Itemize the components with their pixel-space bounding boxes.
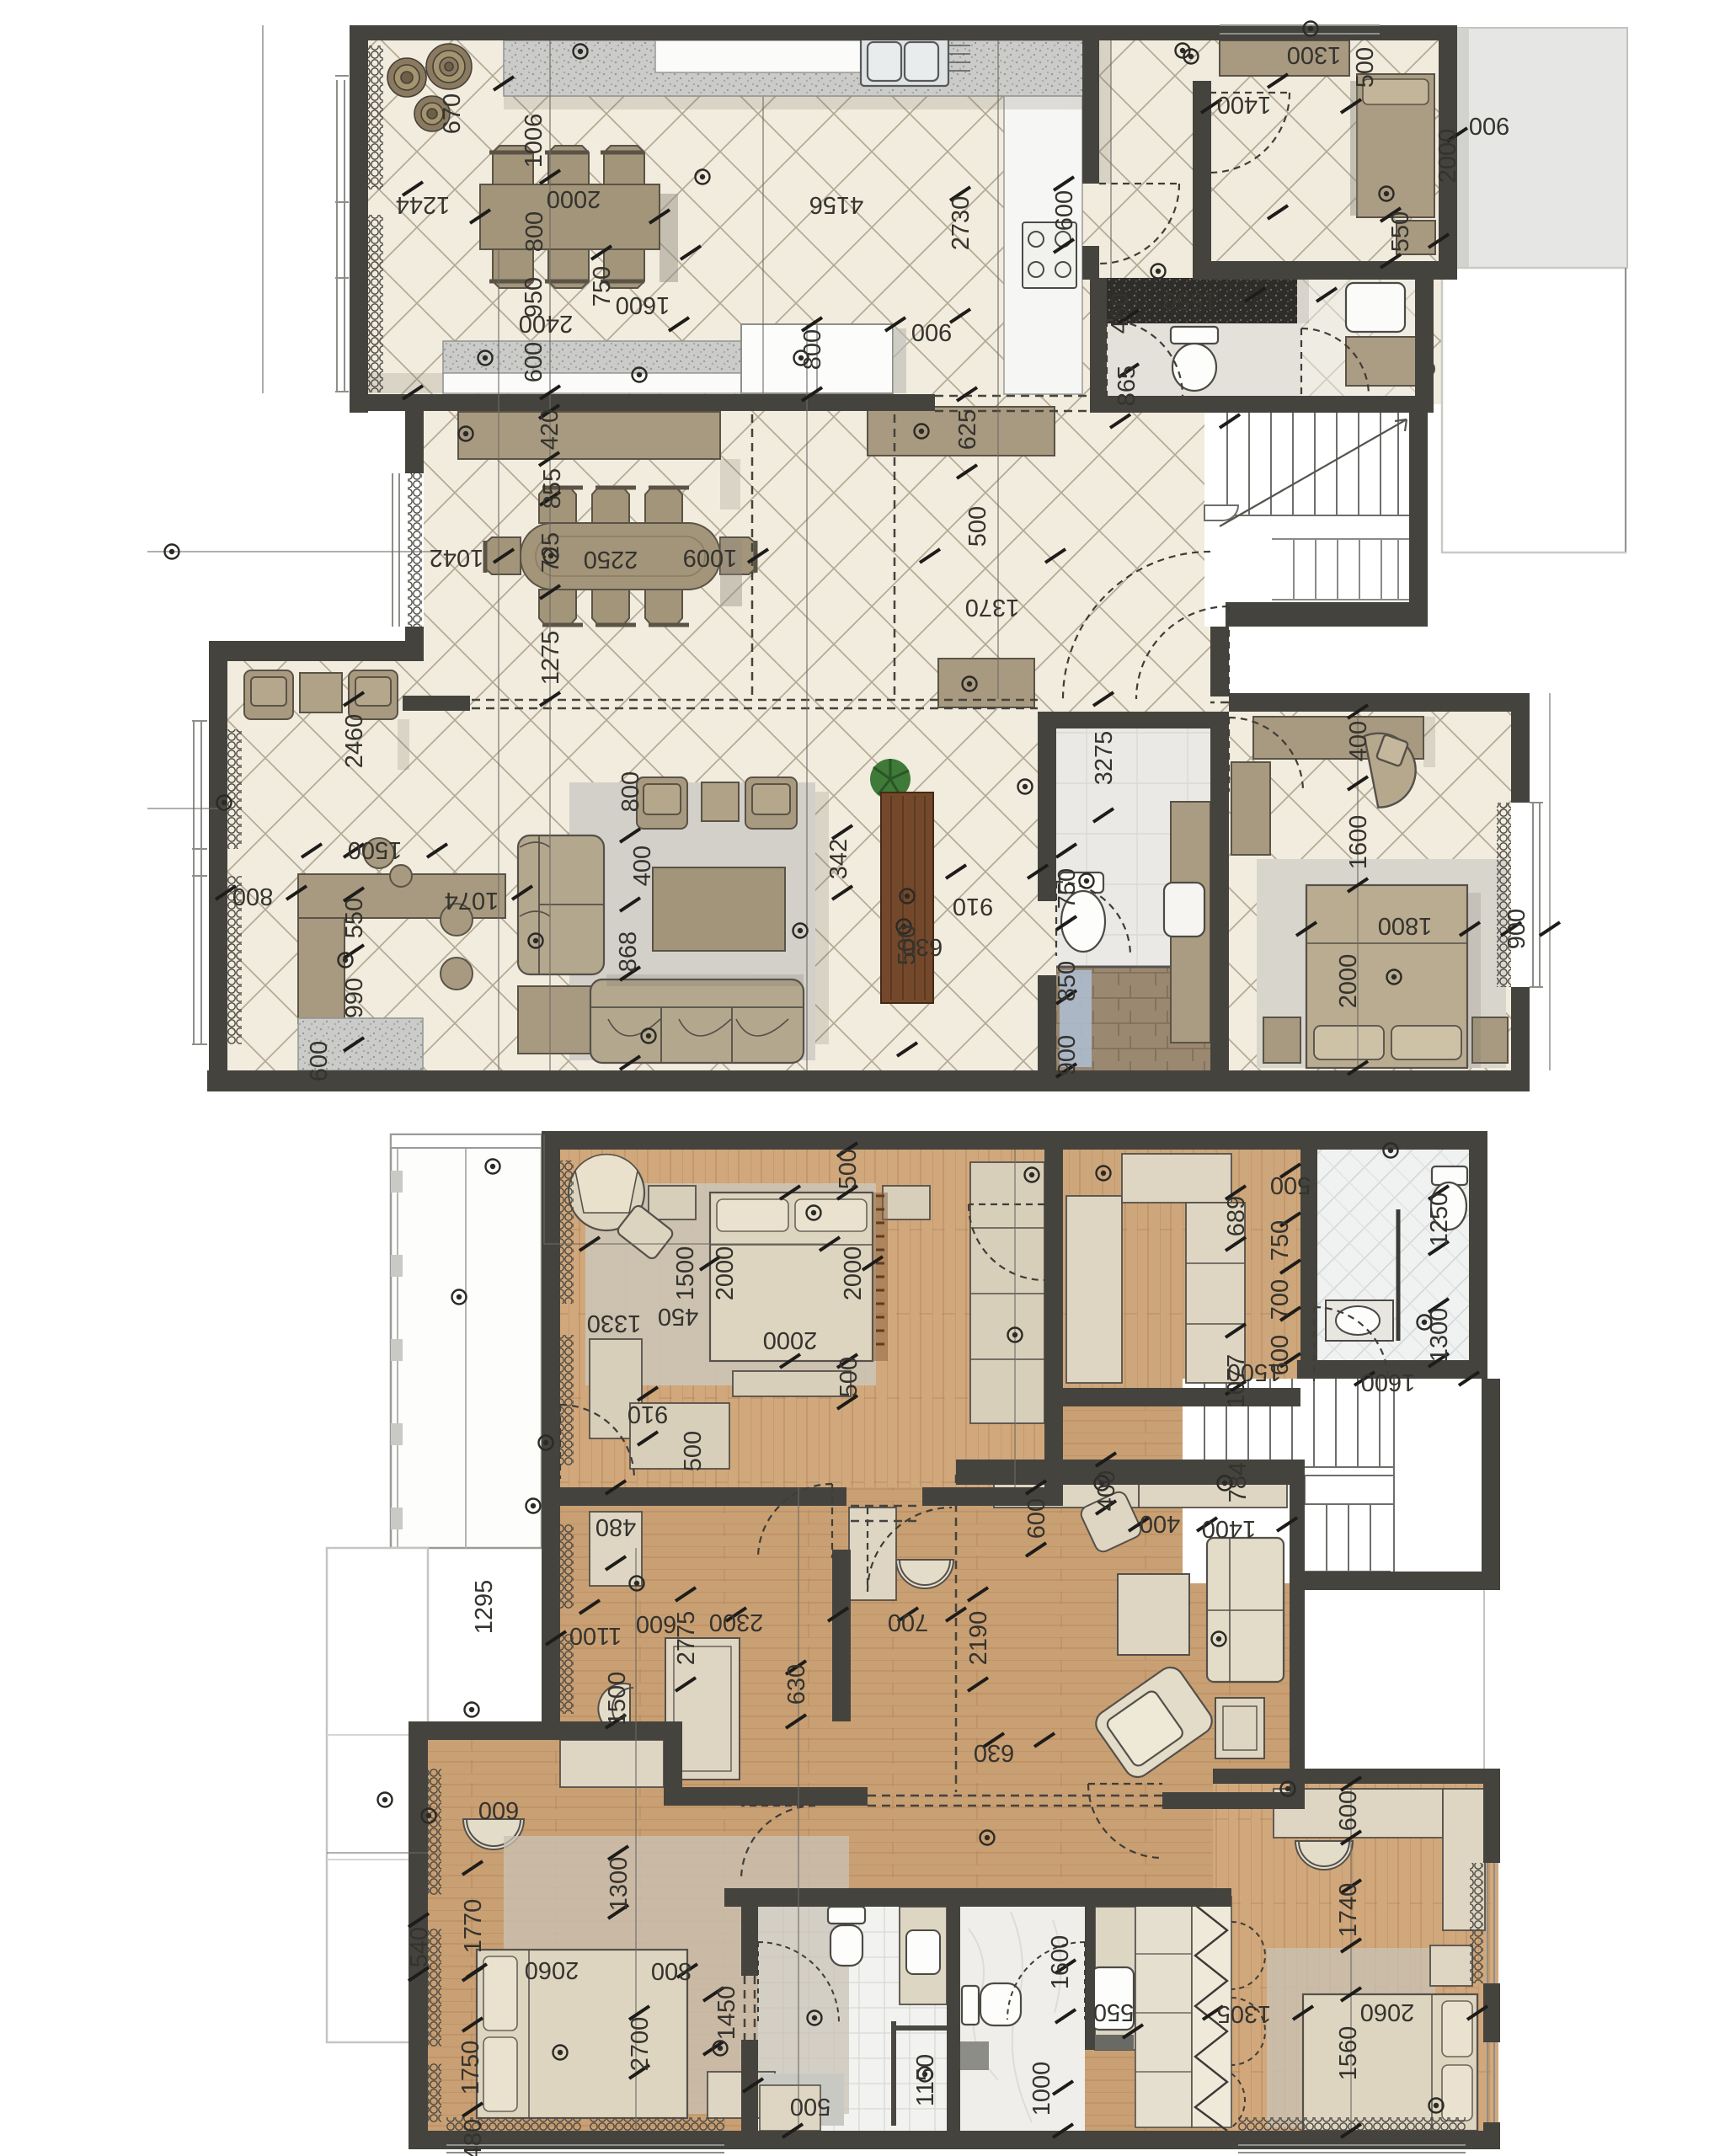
svg-text:1500: 1500 <box>604 1672 631 1726</box>
svg-text:1400: 1400 <box>1202 1515 1257 1542</box>
svg-text:600: 600 <box>306 1041 333 1081</box>
svg-text:600: 600 <box>1023 1498 1050 1539</box>
svg-text:2300: 2300 <box>709 1609 764 1636</box>
svg-text:400: 400 <box>629 846 656 886</box>
svg-text:1500: 1500 <box>348 836 403 863</box>
svg-text:910: 910 <box>953 893 993 920</box>
svg-text:2000: 2000 <box>840 1246 867 1301</box>
svg-text:2000: 2000 <box>712 1246 739 1301</box>
svg-text:1042: 1042 <box>430 544 484 571</box>
svg-text:900: 900 <box>1054 1035 1081 1075</box>
svg-text:800: 800 <box>617 771 644 812</box>
svg-text:1500: 1500 <box>672 1246 699 1301</box>
svg-text:480: 480 <box>595 1513 636 1540</box>
svg-text:600: 600 <box>1051 190 1078 231</box>
svg-text:1244: 1244 <box>396 191 451 218</box>
svg-text:1550: 1550 <box>1163 287 1218 314</box>
svg-text:460: 460 <box>1107 293 1134 334</box>
svg-text:2460: 2460 <box>341 714 368 769</box>
svg-text:2000: 2000 <box>763 1326 818 1353</box>
svg-text:550: 550 <box>1387 211 1414 252</box>
svg-text:1600: 1600 <box>1047 1935 1074 1990</box>
svg-text:400: 400 <box>1093 1470 1120 1511</box>
svg-text:500: 500 <box>680 1431 707 1471</box>
svg-text:910: 910 <box>628 1401 668 1428</box>
svg-text:700: 700 <box>1267 1279 1294 1320</box>
svg-text:2730: 2730 <box>948 196 975 251</box>
svg-text:800: 800 <box>799 329 826 370</box>
svg-text:450: 450 <box>658 1303 698 1330</box>
svg-text:725: 725 <box>537 532 564 573</box>
svg-text:900: 900 <box>1469 112 1509 139</box>
svg-text:670: 670 <box>439 93 466 134</box>
svg-text:500: 500 <box>790 2093 830 2120</box>
svg-text:900: 900 <box>1503 909 1530 949</box>
svg-text:2000: 2000 <box>1434 129 1461 184</box>
svg-text:500: 500 <box>836 1357 862 1397</box>
svg-text:1740: 1740 <box>1335 1883 1362 1938</box>
svg-text:1600: 1600 <box>1345 815 1372 870</box>
svg-text:600: 600 <box>1335 1790 1362 1831</box>
svg-text:1006: 1006 <box>521 114 547 168</box>
svg-text:1400: 1400 <box>1217 91 1272 118</box>
svg-text:750: 750 <box>589 266 616 307</box>
svg-text:1600: 1600 <box>616 291 670 318</box>
svg-text:1009: 1009 <box>683 544 738 571</box>
svg-text:1305: 1305 <box>1217 2000 1272 2027</box>
svg-text:2700: 2700 <box>627 2017 654 2072</box>
svg-text:480: 480 <box>460 2119 487 2156</box>
svg-text:600: 600 <box>521 342 547 382</box>
svg-text:1750: 1750 <box>457 2041 484 2095</box>
svg-text:1074: 1074 <box>445 887 499 914</box>
svg-text:689: 689 <box>1223 1196 1250 1236</box>
svg-text:784: 784 <box>1225 1462 1252 1502</box>
svg-text:750: 750 <box>1054 868 1081 909</box>
svg-text:2250: 2250 <box>584 546 638 573</box>
svg-text:550: 550 <box>1093 1999 1134 2025</box>
svg-text:2000: 2000 <box>1335 954 1362 1009</box>
svg-text:1000: 1000 <box>1028 2062 1055 2116</box>
svg-text:1300: 1300 <box>1426 1308 1453 1363</box>
svg-text:1150: 1150 <box>912 2054 939 2106</box>
svg-text:500: 500 <box>1270 1171 1311 1198</box>
svg-text:990: 990 <box>341 978 368 1018</box>
svg-text:2400: 2400 <box>519 310 574 337</box>
svg-text:850: 850 <box>1054 961 1081 1001</box>
svg-text:4156: 4156 <box>809 191 864 218</box>
svg-text:1300: 1300 <box>606 1857 633 1912</box>
svg-text:1770: 1770 <box>460 1899 487 1954</box>
svg-text:540: 540 <box>406 1927 433 1967</box>
svg-text:900: 900 <box>911 318 952 345</box>
svg-text:630: 630 <box>974 1739 1014 1766</box>
svg-text:865: 865 <box>1114 366 1140 406</box>
svg-text:1800: 1800 <box>1378 912 1433 939</box>
svg-text:400: 400 <box>1140 1510 1180 1537</box>
svg-text:2060: 2060 <box>1360 1999 1415 2025</box>
svg-text:1330: 1330 <box>587 1310 642 1337</box>
svg-text:1450: 1450 <box>713 1986 740 2041</box>
svg-text:800: 800 <box>651 1957 692 1984</box>
svg-text:630: 630 <box>902 933 943 960</box>
svg-text:1300: 1300 <box>1287 41 1342 68</box>
svg-text:500: 500 <box>835 1149 862 1189</box>
svg-text:1100: 1100 <box>569 1622 622 1649</box>
svg-text:855: 855 <box>539 468 566 509</box>
svg-text:700: 700 <box>888 1609 928 1636</box>
svg-text:750: 750 <box>1267 1220 1294 1261</box>
svg-text:420: 420 <box>537 409 563 450</box>
svg-text:400: 400 <box>1345 721 1372 761</box>
svg-text:625: 625 <box>954 409 981 450</box>
svg-text:600: 600 <box>478 1796 519 1823</box>
svg-text:1500: 1500 <box>1227 1358 1282 1385</box>
svg-text:2190: 2190 <box>965 1611 992 1666</box>
svg-text:800: 800 <box>232 883 273 910</box>
svg-text:1295: 1295 <box>471 1580 498 1635</box>
svg-text:2775: 2775 <box>673 1611 700 1666</box>
svg-text:600: 600 <box>636 1610 676 1637</box>
svg-text:500: 500 <box>1352 47 1379 88</box>
svg-text:342: 342 <box>825 839 852 879</box>
svg-text:1600: 1600 <box>1361 1369 1416 1396</box>
svg-text:868: 868 <box>615 931 642 972</box>
svg-text:1560: 1560 <box>1335 2026 1362 2081</box>
svg-text:500: 500 <box>964 506 991 547</box>
svg-text:1250: 1250 <box>1426 1193 1453 1247</box>
svg-text:3275: 3275 <box>1091 731 1118 786</box>
svg-text:630: 630 <box>783 1664 810 1705</box>
svg-text:2000: 2000 <box>547 185 601 212</box>
svg-text:2060: 2060 <box>525 1956 579 1983</box>
svg-text:1370: 1370 <box>965 594 1020 621</box>
svg-text:1275: 1275 <box>537 631 564 686</box>
svg-text:550: 550 <box>341 898 368 938</box>
svg-text:800: 800 <box>521 211 548 252</box>
